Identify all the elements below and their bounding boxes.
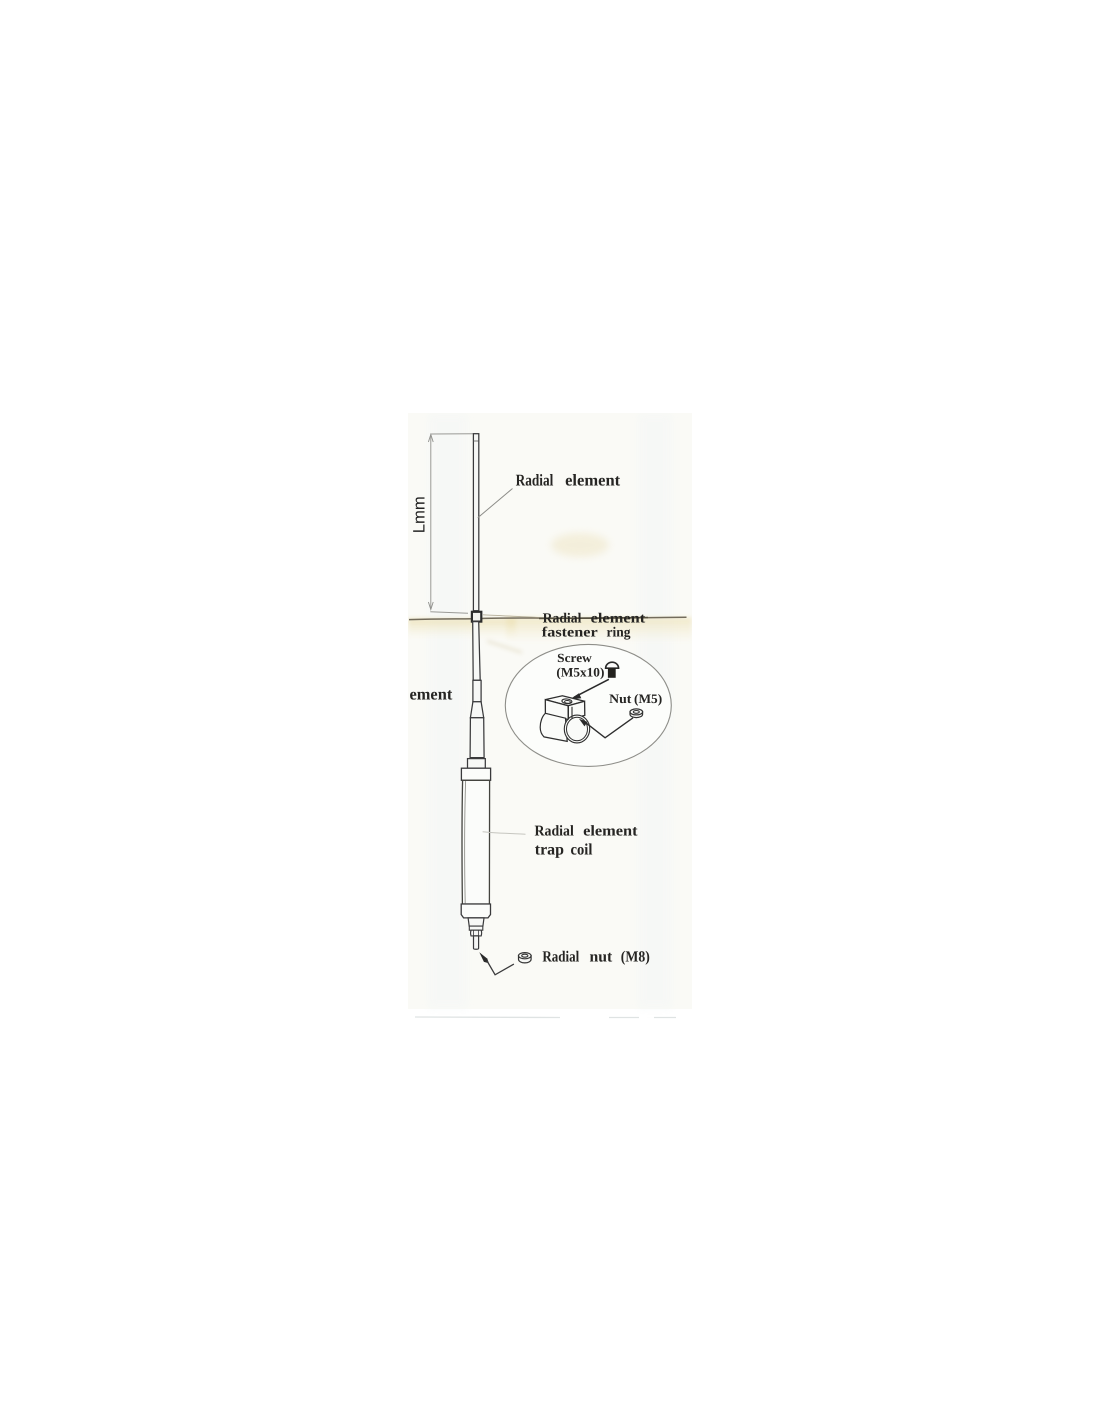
- svg-text:Lmm: Lmm: [410, 496, 428, 533]
- svg-text:Nut: Nut: [609, 691, 632, 706]
- svg-text:Radial: Radial: [542, 949, 579, 966]
- svg-text:Radial: Radial: [535, 824, 574, 840]
- svg-text:trap: trap: [535, 842, 564, 859]
- svg-text:ring: ring: [607, 626, 631, 641]
- svg-text:element: element: [565, 470, 621, 489]
- svg-text:nut: nut: [590, 949, 614, 966]
- svg-text:(M8): (M8): [621, 949, 650, 966]
- svg-text:Radial: Radial: [516, 470, 554, 489]
- svg-text:element: element: [583, 824, 638, 840]
- svg-text:Radial: Radial: [543, 612, 582, 627]
- svg-text:coil: coil: [571, 842, 593, 859]
- svg-text:element: element: [591, 612, 646, 627]
- svg-text:(M5x10): (M5x10): [556, 665, 604, 680]
- svg-text:(M5): (M5): [634, 691, 662, 706]
- svg-text:ement: ement: [410, 685, 453, 704]
- svg-text:fastener: fastener: [542, 626, 598, 641]
- svg-text:Screw: Screw: [557, 651, 592, 665]
